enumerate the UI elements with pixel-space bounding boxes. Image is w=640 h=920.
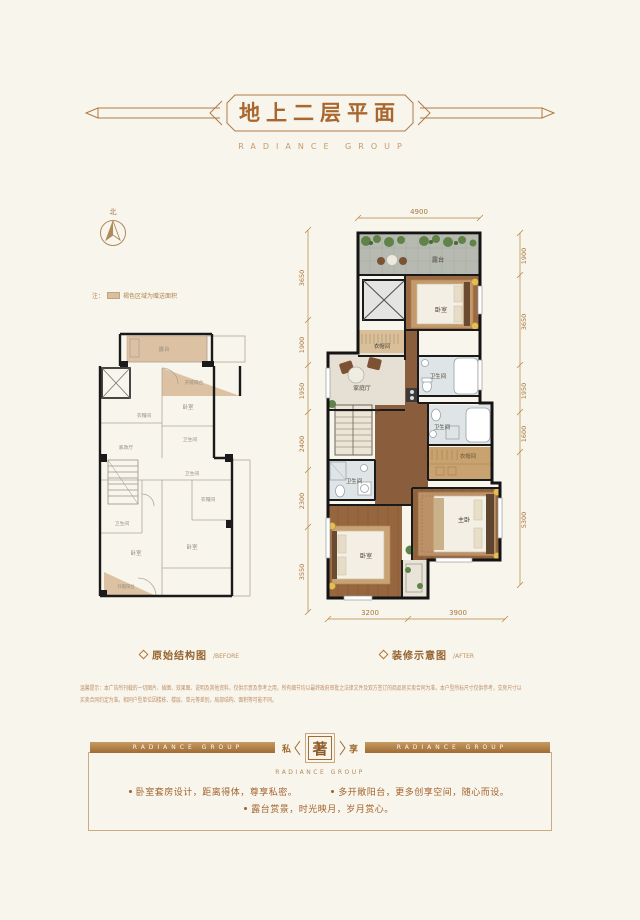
poster-page: 地上二层平面 RADIANCE GROUP 北 注： 褐色区域为赠送面积: [0, 0, 640, 920]
dim-left: 3650: [298, 270, 306, 287]
note-prefix: 注：: [92, 291, 104, 300]
left-arrow-tip-icon: [86, 108, 98, 118]
room-label: 卧室: [186, 543, 198, 551]
room-label: 衣帽间: [137, 412, 152, 419]
selling-point-text: 多开敞阳台，更多创享空间，随心而设。: [338, 785, 509, 798]
terrace-table: [387, 255, 398, 266]
room-label: 开敞阳台: [117, 583, 134, 590]
plant-icon: [417, 583, 423, 589]
lamp-icon: [472, 323, 479, 330]
dim-right: 3650: [520, 314, 528, 331]
ribbon-left: RADIANCE GROUP: [90, 742, 286, 753]
header-ornament: 地上二层平面: [80, 86, 560, 144]
legend-before: 原始结构图 /BEFORE: [140, 647, 239, 662]
chevron-left-icon: [294, 740, 301, 756]
plant-icon: [405, 567, 411, 573]
room-label: 卫生间: [183, 436, 198, 443]
before-stairs: [108, 460, 138, 504]
selling-points-row-2: 露台赏景，时光映月，岁月赏心。: [88, 802, 550, 815]
room-label: 开敞阳台: [185, 379, 204, 386]
legend-after: 装修示意图 /AFTER: [380, 647, 474, 662]
room-label: 卫生间: [346, 477, 362, 485]
selling-point: 露台赏景，时光映月，岁月赏心。: [244, 802, 394, 815]
note-text: 褐色区域为赠送面积: [123, 291, 177, 300]
dim-right: 5300: [520, 512, 528, 529]
emblem-right-char: 享: [349, 742, 358, 755]
room-label: 卧室: [130, 549, 142, 557]
room-label: 家政厅: [119, 444, 134, 451]
compass-north-label: 北: [110, 208, 117, 216]
emblem-left-char: 私: [282, 742, 291, 755]
legend-diamond-icon: [139, 650, 149, 660]
legend-diamond-icon: [379, 650, 389, 660]
selling-point: 卧室套房设计，距离得体，尊享私密。: [129, 785, 298, 798]
bullet-dot-icon: [331, 790, 334, 793]
room-label: 衣帽间: [460, 452, 476, 460]
room-label: 衣帽间: [374, 342, 390, 350]
brand-subtitle: RADIANCE GROUP: [0, 142, 640, 151]
emblem-center-char: 著: [308, 736, 332, 760]
lamp-icon: [329, 583, 336, 590]
bedroom-top: [411, 279, 479, 330]
room-label: 露台: [432, 256, 444, 264]
after-floor-plan: 露台 卧室 衣帽间 家庭厅 卫生间 下 卫生间 衣帽间 卫生间 主卧 卧室 49…: [296, 198, 540, 658]
disclaimer-line-1: 温馨提示：本广告所刊载的一切图片、插图、效果图、说明及其他资料，仅供示意及参考之…: [80, 683, 576, 695]
wash-basin: [406, 388, 418, 402]
chevron-right-icon: [339, 740, 346, 756]
dim-right: 1950: [520, 383, 528, 400]
master-bedroom: [418, 489, 501, 560]
after-elevator: [363, 280, 405, 320]
bonus-area-swatch: [107, 292, 120, 299]
right-arrow-tip-icon: [542, 108, 554, 118]
emblem-subtitle: RADIANCE GROUP: [0, 769, 640, 776]
dim-left: 1950: [298, 383, 306, 400]
legend-note: 注： 褐色区域为赠送面积: [92, 291, 177, 300]
selling-point: 多开敞阳台，更多创享空间，随心而设。: [331, 785, 509, 798]
dim-left: 2300: [298, 493, 306, 510]
disclaimer-line-2: 买卖合同约定为准。相同户型单位因楼栋、楼层、单元等差别，局部结构、面积等可能不同…: [80, 695, 576, 707]
room-label: 卫生间: [430, 372, 446, 380]
selling-point-text: 露台赏景，时光映月，岁月赏心。: [251, 802, 394, 815]
room-label: 卫生间: [115, 520, 130, 527]
room-label: 露台: [158, 345, 170, 353]
selling-point-text: 卧室套房设计，距离得体，尊享私密。: [136, 785, 298, 798]
before-elevator: [102, 368, 130, 398]
page-title: 地上二层平面: [239, 101, 401, 125]
dim-bottom: 3200: [361, 609, 379, 617]
terrace-stool: [399, 257, 407, 265]
room-label: 卫生间: [185, 470, 200, 477]
plant-icon: [406, 546, 415, 555]
room-label: 衣帽间: [201, 496, 216, 503]
dim-top: 4900: [410, 208, 428, 216]
room-label: 下: [374, 409, 380, 416]
brand-emblem: 私 著 享: [275, 731, 365, 765]
dim-right: 1600: [520, 426, 528, 443]
room-label: 家庭厅: [353, 384, 371, 392]
round-table: [348, 367, 364, 383]
bullet-dot-icon: [129, 790, 132, 793]
ribbon-right: RADIANCE GROUP: [354, 742, 550, 753]
bullet-dot-icon: [244, 807, 247, 810]
disclaimer: 温馨提示：本广告所刊载的一切图片、插图、效果图、说明及其他资料，仅供示意及参考之…: [80, 683, 576, 706]
room-label: 卧室: [360, 552, 372, 560]
dim-right: 1900: [520, 248, 528, 265]
selling-points-row-1: 卧室套房设计，距离得体，尊享私密。 多开敞阳台，更多创享空间，随心而设。: [88, 785, 550, 798]
dim-bottom: 3900: [449, 609, 467, 617]
room-label: 卧室: [435, 306, 447, 314]
room-label: 主卧: [458, 516, 470, 524]
room-label: 卫生间: [434, 423, 450, 431]
dim-left: 2400: [298, 436, 306, 453]
before-floor-plan: 露台 开敞阳台 卧室 衣帽间 卫生间 家政厅 卫生间 衣帽间 卫生间 卧室 卧室…: [92, 328, 262, 620]
terrace-stool: [377, 257, 385, 265]
room-label: 卧室: [182, 403, 194, 411]
legend-after-label: 装修示意图: [392, 647, 447, 662]
lamp-icon: [472, 279, 479, 286]
legend-before-en: /BEFORE: [213, 650, 239, 660]
dim-left: 1900: [298, 337, 306, 354]
legend-before-label: 原始结构图: [152, 647, 207, 662]
dim-left: 3550: [298, 564, 306, 581]
compass-icon: 北: [92, 206, 136, 254]
legend-after-en: /AFTER: [453, 650, 474, 660]
